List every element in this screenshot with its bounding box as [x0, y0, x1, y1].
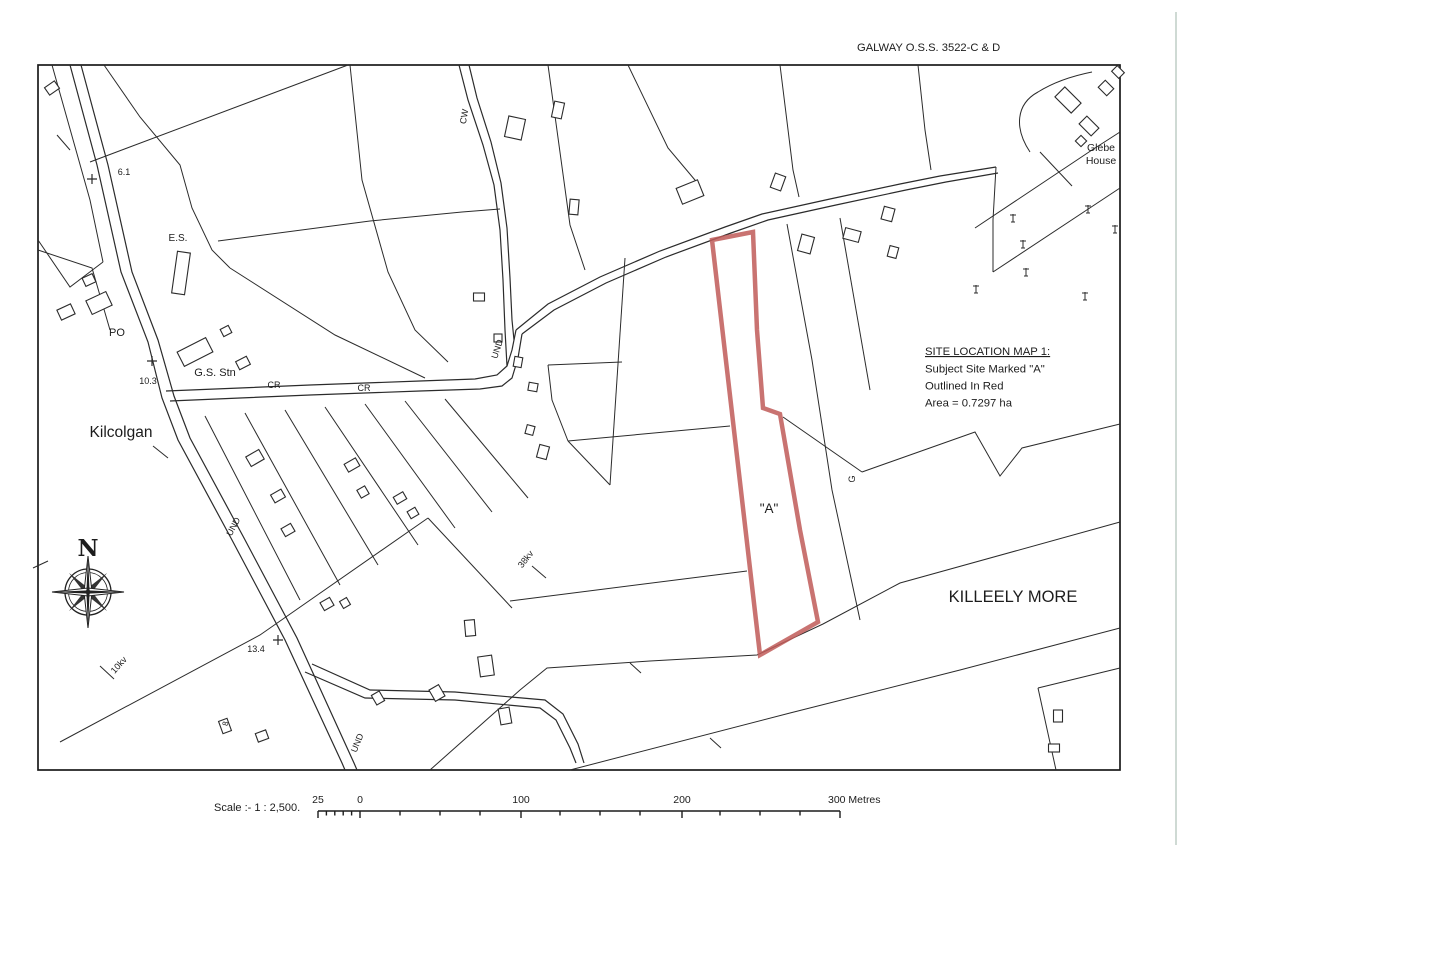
- label-glebe: Glebe: [1087, 142, 1115, 154]
- scale-bar-line: [318, 811, 840, 818]
- label-gs-stn: G.S. Stn: [194, 367, 236, 379]
- sheet-title: GALWAY O.S.S. 3522-C & D: [857, 42, 1000, 54]
- map-border: [38, 65, 1120, 770]
- label-kilcolgan: Kilcolgan: [90, 424, 153, 441]
- site-location-map: GALWAY O.S.S. 3522-C & D: [0, 0, 1440, 960]
- scale-label: Scale :- 1 : 2,500.: [214, 802, 300, 814]
- label-cr-1: CR: [268, 380, 281, 390]
- label-site-a: "A": [760, 501, 779, 516]
- label-glebe-house: House: [1086, 155, 1117, 167]
- scanned-map-page: GALWAY O.S.S. 3522-C & D: [0, 0, 1440, 960]
- scale-0: 0: [357, 794, 363, 806]
- scale-bar: Scale :- 1 : 2,500. 25 0 100 200 300 Met…: [214, 794, 881, 818]
- scale-300-metres: 300 Metres: [828, 794, 881, 806]
- label-6-1: 6.1: [118, 167, 131, 177]
- label-killeely-more: KILLEELY MORE: [949, 588, 1078, 606]
- annotation-line-2: Outlined In Red: [925, 381, 1004, 393]
- scale-100: 100: [512, 794, 530, 806]
- scale-200: 200: [673, 794, 691, 806]
- scale-25: 25: [312, 794, 324, 806]
- label-es: E.S.: [169, 233, 188, 244]
- annotation-line-1: Subject Site Marked "A": [925, 364, 1045, 376]
- label-po: PO: [109, 327, 125, 339]
- annotation-line-3: Area = 0.7297 ha: [925, 398, 1013, 410]
- label-10-3: 10.3: [139, 376, 157, 386]
- label-13-4: 13.4: [247, 644, 265, 654]
- label-g-symbol: G: [847, 475, 857, 482]
- annotation-heading: SITE LOCATION MAP 1:: [925, 346, 1050, 358]
- compass-north-label: N: [77, 535, 98, 562]
- label-cr-2: CR: [358, 383, 371, 393]
